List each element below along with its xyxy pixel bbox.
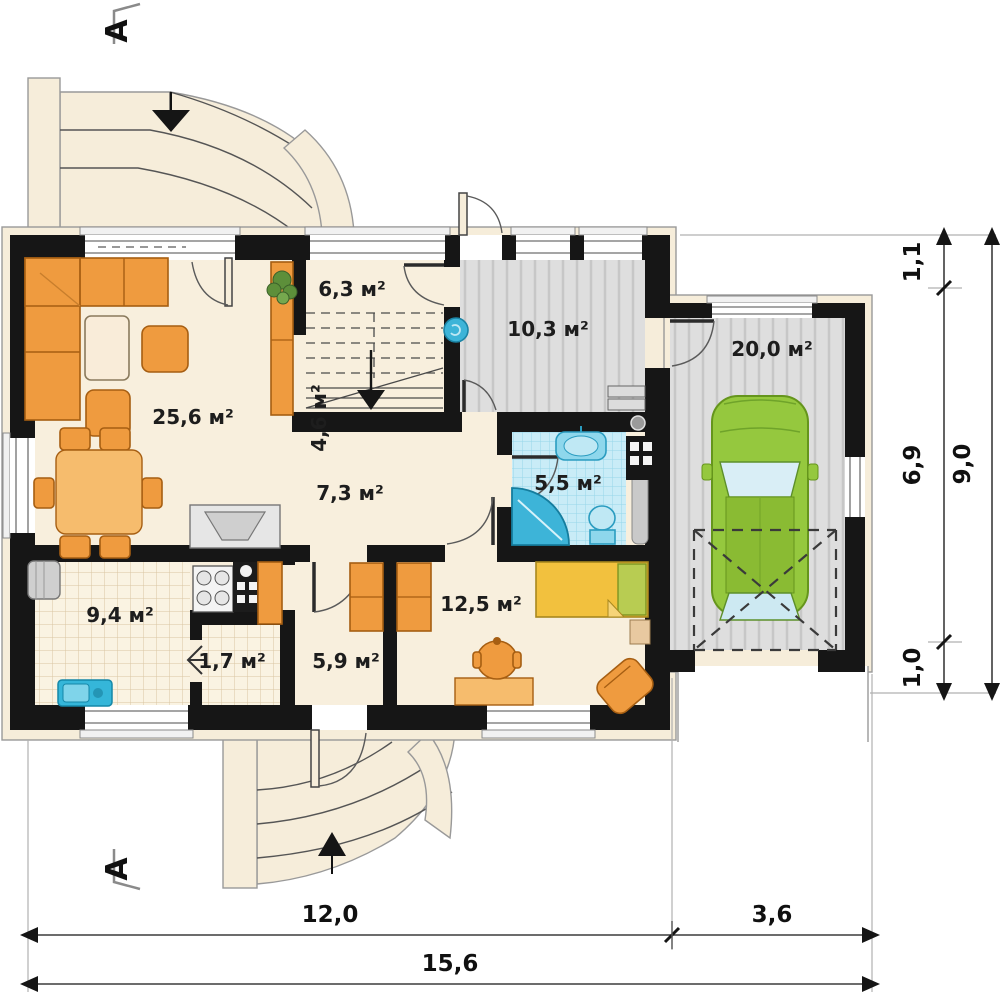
stair-window — [305, 227, 450, 260]
dim-right-total: 9,0 — [950, 444, 976, 485]
room-label-utility: 10,3 м² — [507, 317, 588, 341]
room-label-hallway: 7,3 м² — [316, 481, 384, 505]
living-window — [80, 227, 240, 260]
room-label-bedroom: 12,5 м² — [440, 592, 521, 616]
section-letter-bottom: A — [100, 857, 135, 881]
windshield — [720, 462, 800, 497]
porch-pillar — [223, 736, 257, 888]
section-marker-bottom: A — [100, 849, 140, 889]
armchair-1 — [142, 326, 188, 372]
dim-bottom-right: 3,6 — [752, 902, 793, 928]
stove — [193, 566, 233, 612]
floor-plan: 25,6 м² 6,3 м² 4,6 м² 10,3 м² 7,3 м² 5,5… — [0, 0, 1000, 994]
room-label-kitchen: 9,4 м² — [86, 603, 154, 627]
room-label-bathroom: 5,5 м² — [534, 471, 602, 495]
section-letter-top: A — [100, 19, 135, 43]
pump-icon — [444, 318, 468, 342]
garage-window — [707, 296, 817, 318]
room-label-stairs: 4,6 м² — [307, 384, 331, 452]
bedroom-window — [482, 705, 595, 738]
driveway — [678, 666, 868, 742]
kitchen-cabinet — [258, 562, 282, 624]
hall-cabinet — [267, 262, 297, 415]
garage-side-door — [845, 457, 865, 517]
bed — [536, 562, 648, 617]
desk — [455, 678, 533, 705]
kitchen-sink — [58, 680, 112, 706]
room-label-pantry: 1,7 м² — [198, 649, 266, 673]
rear-window — [720, 593, 800, 620]
utility-window-1 — [511, 227, 575, 260]
left-window — [3, 433, 35, 538]
room-label-living: 25,6 м² — [152, 405, 233, 429]
mirror-right — [808, 464, 818, 480]
dim-right-mid: 6,9 — [900, 445, 926, 486]
room-label-corridor: 5,9 м² — [312, 649, 380, 673]
oven-column — [233, 562, 259, 612]
dim-right-top: 1,1 — [900, 242, 926, 283]
coffee-table — [85, 316, 129, 380]
room-label-garage: 20,0 м² — [731, 337, 812, 361]
terrace-pillar — [28, 78, 60, 235]
dim-right-bottom: 1,0 — [900, 648, 926, 689]
bedside-table — [630, 620, 650, 644]
dim-bottom-left: 12,0 — [302, 902, 359, 928]
cooker-hood-counter — [190, 505, 280, 548]
kitchen-window — [80, 705, 193, 738]
utility-window-2 — [579, 227, 647, 260]
dining-table — [56, 450, 142, 534]
terrace-steps — [28, 78, 354, 235]
washer-drum-icon — [631, 416, 645, 430]
mirror-left — [702, 464, 712, 480]
rear-porch-steps — [223, 730, 455, 888]
water-heater — [626, 436, 654, 480]
floor-plan-page: 25,6 м² 6,3 м² 4,6 м² 10,3 м² 7,3 м² 5,5… — [0, 0, 1000, 994]
toilet — [589, 506, 615, 544]
section-marker-top: A — [100, 4, 140, 44]
room-label-entry: 6,3 м² — [318, 277, 386, 301]
dim-bottom-total: 15,6 — [422, 951, 479, 977]
